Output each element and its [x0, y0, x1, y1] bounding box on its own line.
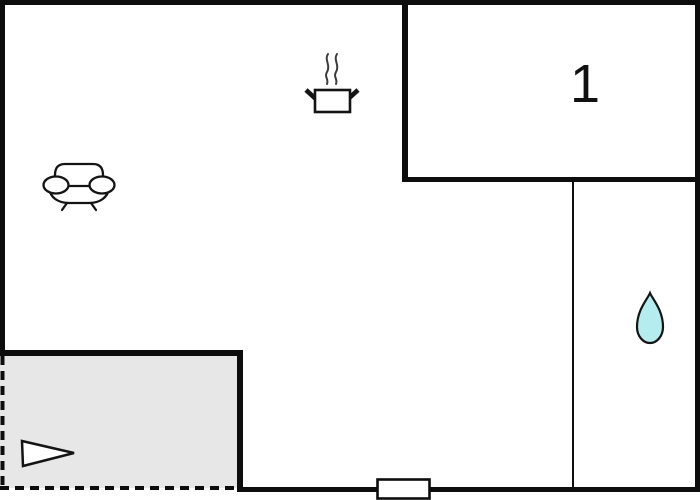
- wall-terrace-top: [0, 350, 243, 356]
- wall-interior-partition: [572, 182, 574, 487]
- sofa-icon: [44, 164, 115, 210]
- water-drop-shape: [637, 293, 663, 343]
- cooking-pot-icon: [306, 54, 358, 112]
- steam-line-left: [326, 54, 328, 84]
- sofa-armrest-left: [44, 177, 69, 194]
- room-number-label: 1: [553, 57, 617, 111]
- terrace-area: [0, 353, 240, 488]
- sofa-leg-left: [62, 203, 67, 210]
- wall-room1-left: [402, 0, 408, 182]
- sofa-leg-right: [91, 203, 96, 210]
- door-marker: [378, 480, 430, 499]
- wall-top: [0, 0, 700, 5]
- wall-terrace-right: [237, 350, 243, 492]
- water-drop-icon: [637, 293, 663, 343]
- steam-line-right: [335, 54, 337, 84]
- pot-body: [315, 90, 350, 112]
- wall-bottom: [238, 487, 700, 492]
- wall-left: [0, 0, 5, 356]
- floor-plan: 1: [0, 0, 700, 500]
- sofa-armrest-right: [90, 177, 115, 194]
- wall-room1-bottom: [402, 177, 700, 182]
- wall-right: [695, 0, 700, 492]
